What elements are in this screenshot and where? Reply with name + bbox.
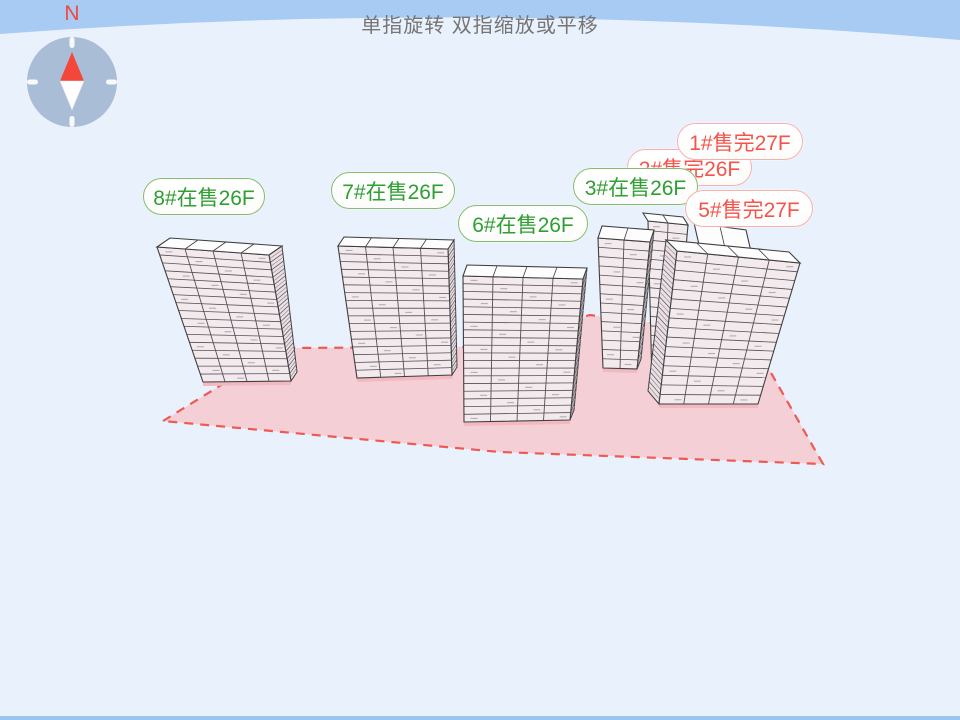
compass-dial — [22, 32, 122, 132]
building-7[interactable] — [338, 237, 457, 380]
building-label-7[interactable]: 7#在售26F — [331, 172, 455, 209]
building-6[interactable] — [463, 265, 587, 424]
building-8[interactable] — [157, 238, 297, 384]
bottom-bar — [0, 716, 960, 720]
building-label-6[interactable]: 6#在售26F — [458, 205, 588, 242]
building-5[interactable] — [648, 240, 800, 406]
compass-tick-north — [70, 37, 75, 48]
sales-map-app: 单指旋转 双指缩放或平移 N 8#在售26F 7#在售26F 6#在售26F 2… — [0, 0, 960, 720]
compass-tick-west — [27, 80, 38, 85]
compass-tick-east — [106, 80, 117, 85]
compass-north-label: N — [58, 2, 86, 26]
compass-tick-south — [70, 116, 75, 127]
building-label-3[interactable]: 3#在售26F — [573, 168, 698, 205]
building-label-5[interactable]: 5#售完27F — [685, 190, 813, 227]
compass[interactable] — [22, 32, 122, 132]
building-label-1[interactable]: 1#售完27F — [677, 123, 803, 160]
gesture-hint: 单指旋转 双指缩放或平移 — [0, 9, 960, 38]
building-label-8[interactable]: 8#在售26F — [143, 178, 265, 215]
scene-canvas[interactable] — [0, 0, 960, 720]
